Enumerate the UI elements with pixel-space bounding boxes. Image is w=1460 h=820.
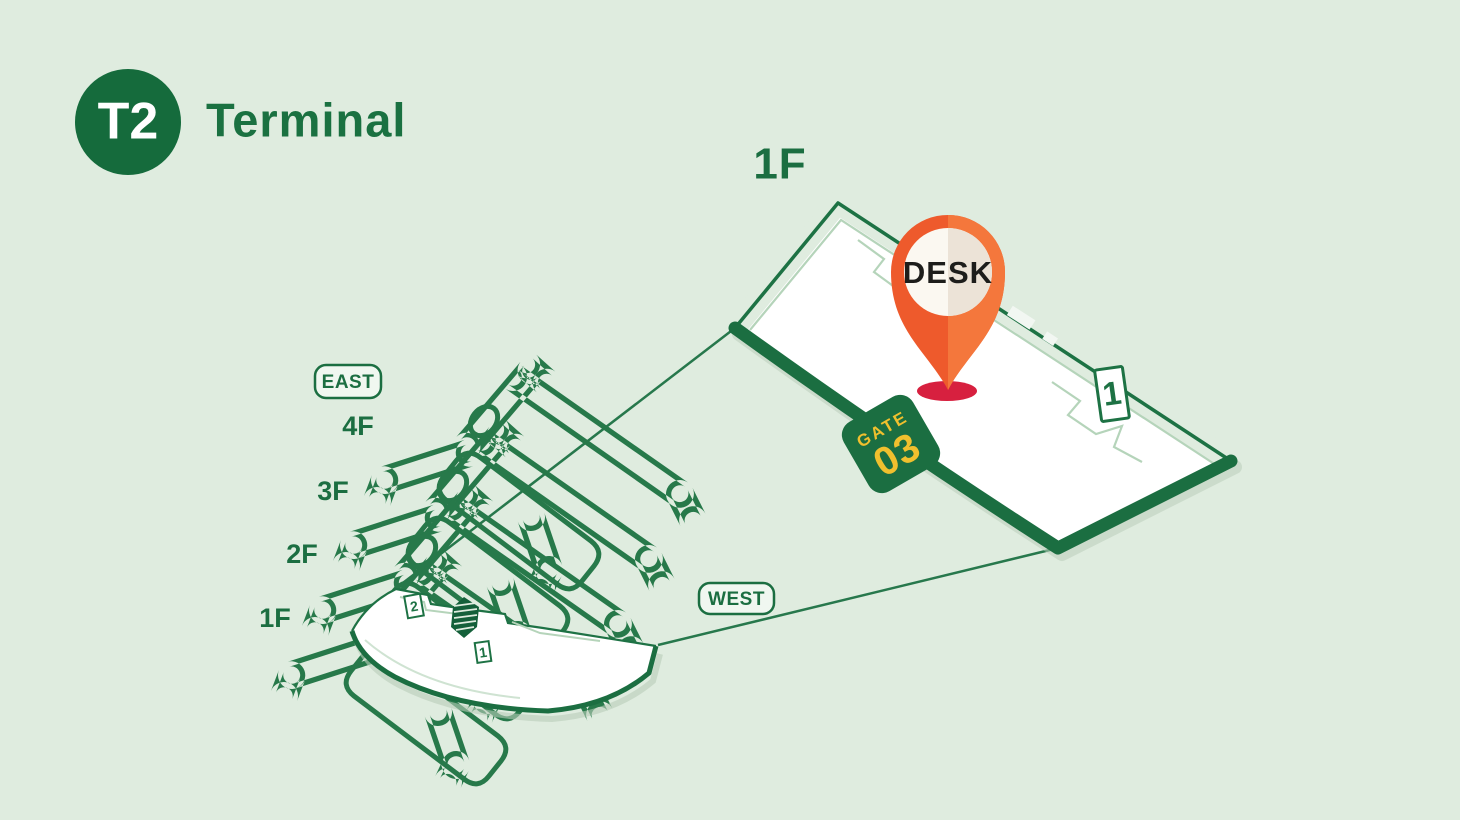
floor-label-3f: 3F [317, 476, 349, 506]
zoomed-floor-view: GATE 03 1 DESK [735, 203, 1235, 554]
desk-pin-label: DESK [903, 255, 993, 290]
mini-marker-2: 2 [404, 594, 424, 618]
isometric-floor-stack [271, 355, 706, 788]
east-badge: EAST [315, 365, 381, 398]
mini-marker-1: 1 [475, 641, 492, 663]
east-badge-label: EAST [322, 372, 375, 393]
west-badge-label: WEST [708, 589, 765, 610]
page-title: Terminal [206, 93, 406, 146]
zoomed-floor-label: 1F [753, 140, 806, 189]
floor-label-1f: 1F [259, 603, 291, 633]
wedge-line-top [395, 328, 735, 589]
area-marker-1: 1 [1095, 366, 1130, 421]
header: T2 Terminal [75, 69, 406, 175]
t2-badge-label: T2 [98, 93, 159, 151]
terminal-map: T2 Terminal 2 1 EAS [0, 0, 1460, 820]
floor-label-4f: 4F [342, 411, 374, 441]
floor-label-2f: 2F [286, 539, 318, 569]
west-badge: WEST [699, 583, 774, 614]
terminal-map-canvas: T2 Terminal 2 1 EAS [0, 0, 1460, 820]
